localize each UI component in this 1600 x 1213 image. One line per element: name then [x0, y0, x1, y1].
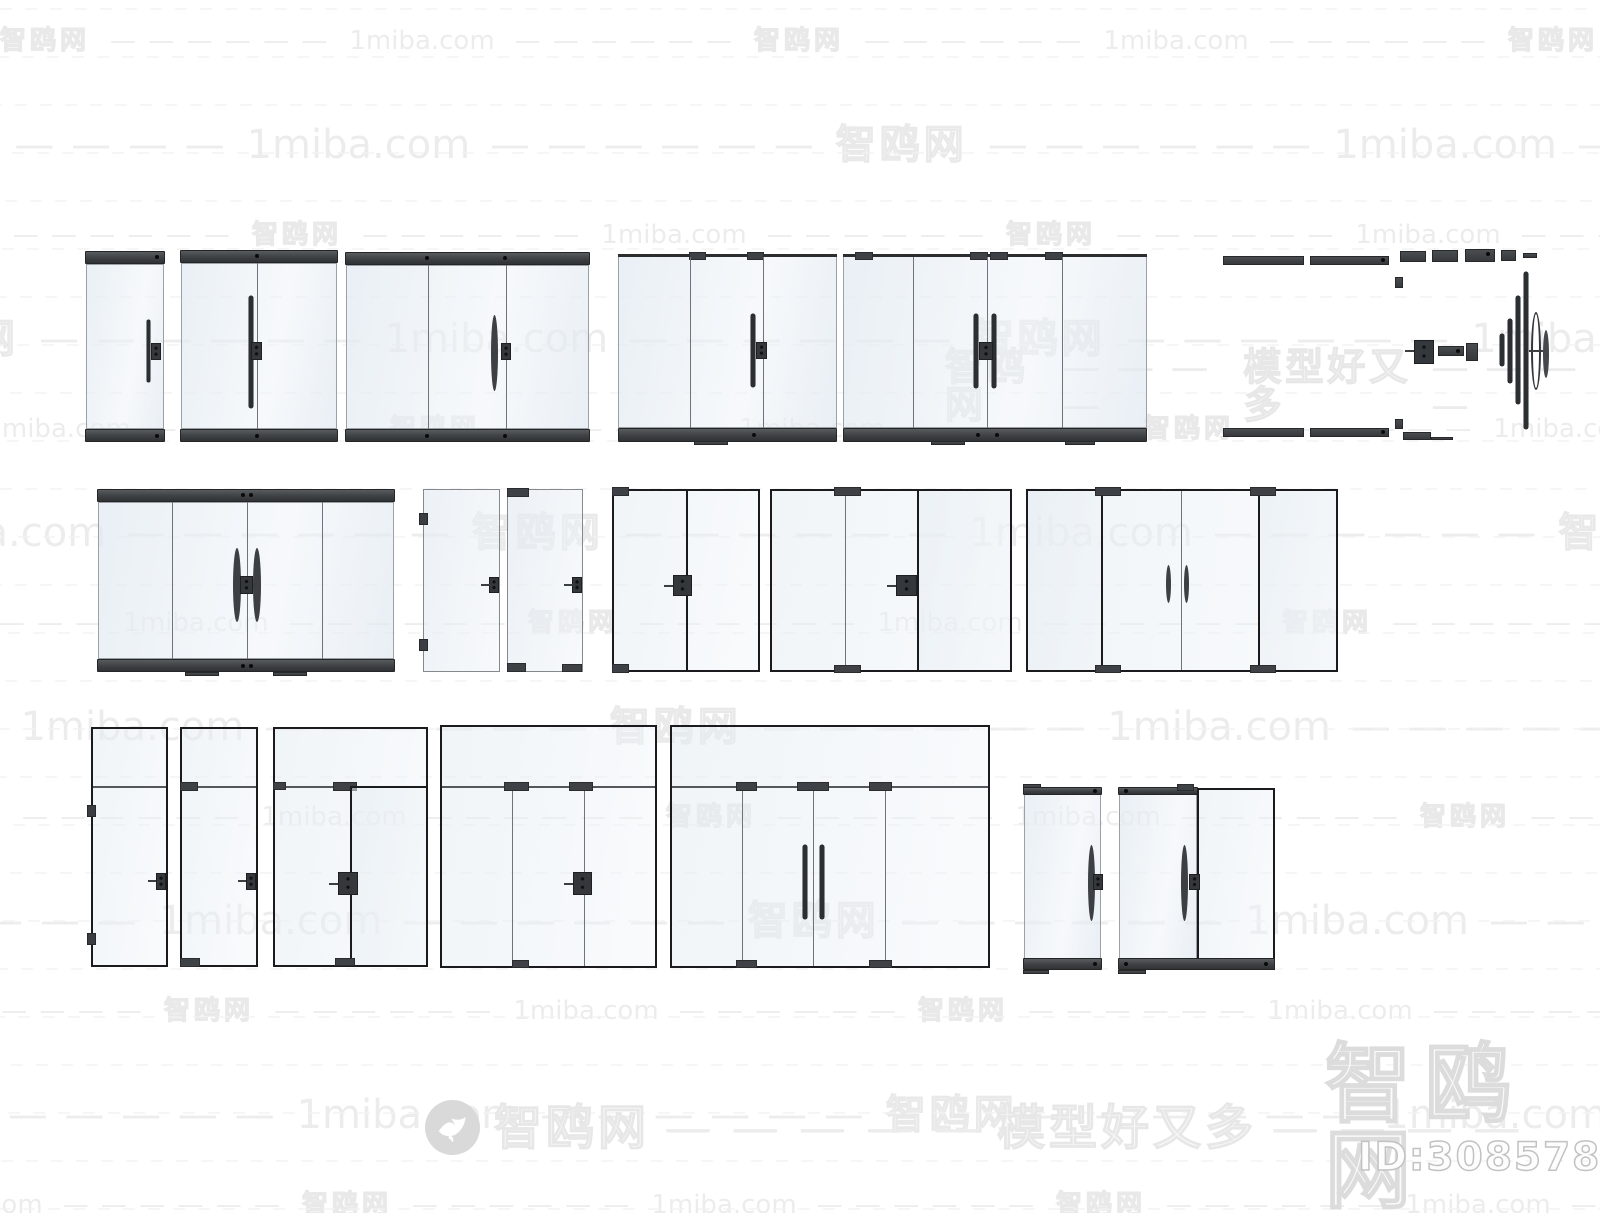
patch-fitting — [512, 960, 529, 968]
hinge — [419, 639, 428, 651]
sliding-door-single — [85, 251, 165, 442]
frame-outline — [91, 727, 168, 967]
frame-outline — [1197, 788, 1275, 970]
door-lock — [501, 343, 511, 360]
patch-fitting — [834, 487, 861, 496]
fastener — [249, 664, 253, 668]
hardware-part — [1310, 256, 1389, 265]
glass-panel — [346, 265, 589, 429]
hardware-part — [1395, 419, 1403, 429]
hardware-part — [1501, 250, 1516, 261]
fastener — [255, 254, 259, 258]
frame-outline — [917, 489, 1012, 672]
fastener — [995, 433, 999, 437]
top-rail — [1023, 787, 1102, 795]
hardware-part — [1438, 346, 1464, 356]
door-lock — [979, 342, 993, 360]
bottom-rail — [618, 428, 837, 442]
door-lock — [156, 873, 166, 890]
fastener — [1093, 789, 1097, 793]
sliding-door-four-panel-wide — [97, 489, 395, 672]
panel-divider — [172, 502, 173, 659]
frame-outline — [440, 725, 657, 968]
patch-fitting — [736, 960, 757, 968]
hardware-part — [1118, 970, 1146, 974]
door-handle — [1184, 565, 1189, 603]
patch-fitting — [990, 252, 1008, 260]
door-handle — [491, 315, 498, 391]
door-lock — [151, 343, 161, 360]
fastener — [241, 493, 245, 497]
lock-key — [329, 883, 338, 885]
patch-fitting — [1250, 665, 1276, 673]
door-lock — [756, 342, 767, 359]
door-handle — [1500, 334, 1504, 366]
transom-line — [442, 786, 655, 788]
door-lock — [572, 577, 582, 593]
bottom-rail — [1023, 958, 1102, 970]
fastener — [1456, 349, 1460, 353]
bottom-rail — [1118, 958, 1275, 970]
hardware-part — [1465, 249, 1495, 262]
patch-fitting — [612, 487, 629, 496]
patch-fitting — [689, 252, 706, 260]
panel-divider — [322, 502, 323, 659]
frame-outline — [670, 725, 990, 968]
lock-key — [481, 584, 490, 586]
transom-door-side-leaf — [273, 727, 428, 967]
fastener — [241, 664, 245, 668]
transom-door-patch — [180, 727, 258, 967]
door-handle — [974, 314, 978, 388]
bottom-rail — [97, 659, 395, 672]
transom-line — [672, 786, 988, 788]
model-preview-canvas: 智鸥网— — — — — —1miba.com— — — — — —智鸥网— —… — [0, 0, 1600, 1213]
door-handle — [803, 845, 807, 919]
door-lock — [246, 873, 256, 890]
fastener — [1381, 258, 1385, 262]
top-rail — [345, 252, 590, 265]
fastener — [155, 255, 159, 259]
door-handle — [820, 845, 824, 919]
patch-fitting — [834, 665, 861, 673]
bottom-rail — [85, 429, 165, 442]
panel-divider — [1062, 257, 1063, 428]
hardware-part — [1310, 428, 1389, 437]
fastener — [255, 434, 259, 438]
hardware-part — [1065, 441, 1095, 445]
hardware-accessories — [1195, 240, 1565, 450]
fastener — [1381, 430, 1385, 434]
door-handle — [1524, 272, 1528, 429]
door-handle — [1181, 845, 1188, 921]
patch-fitting — [562, 664, 582, 672]
fastener — [155, 434, 159, 438]
fastener — [425, 256, 429, 260]
hardware-part — [1431, 437, 1453, 440]
lock-key — [238, 880, 246, 882]
door-lock — [896, 575, 917, 596]
bottom-rail — [345, 429, 590, 442]
patch-fitting — [1177, 784, 1194, 791]
glass-panel — [618, 256, 837, 428]
top-rail — [85, 251, 165, 264]
hardware-part — [273, 672, 307, 676]
hinge — [87, 805, 96, 817]
sliding-door-small — [1023, 787, 1102, 970]
doors-layer — [0, 0, 1600, 1213]
fastener — [249, 493, 253, 497]
panel-divider — [742, 788, 743, 966]
patch-fitting — [273, 782, 286, 790]
panel-divider — [690, 257, 691, 428]
frame-outline — [180, 727, 258, 967]
frame-outline — [1258, 489, 1338, 672]
fastener — [1264, 962, 1268, 966]
patch-fitting — [569, 782, 593, 791]
fastener — [1124, 962, 1128, 966]
hardware-part — [1395, 277, 1403, 288]
door-lock — [1414, 340, 1434, 364]
patch-fitting — [1095, 665, 1121, 673]
patch-fitting — [869, 782, 892, 791]
fastener — [1093, 962, 1097, 966]
door-lock — [489, 577, 499, 593]
frame-outline — [350, 786, 428, 967]
door-lock — [1189, 874, 1200, 890]
lock-key — [887, 585, 896, 587]
door-lock — [338, 872, 358, 895]
fastener — [976, 433, 980, 437]
fastener — [752, 433, 756, 437]
top-rail — [97, 489, 395, 502]
framed-door-double-swing — [1026, 489, 1338, 672]
patch-fitting — [1095, 487, 1121, 496]
patch-fitting — [797, 782, 829, 791]
hardware-part — [1400, 251, 1426, 262]
patch-fitting — [335, 958, 355, 966]
fastener — [503, 256, 507, 260]
patch-fitting — [747, 252, 764, 260]
door-handle — [751, 314, 755, 387]
hardware-part — [931, 441, 965, 445]
patch-fitting — [869, 960, 892, 968]
lock-key — [1405, 350, 1414, 352]
sliding-door-two-panel-small — [1118, 787, 1275, 970]
transom-door-double-leaf — [670, 725, 990, 968]
hinge — [87, 933, 96, 945]
patch-fitting — [504, 782, 529, 791]
panel-divider — [428, 265, 429, 429]
hardware-part — [1023, 970, 1049, 974]
glass-panel-hinged — [423, 489, 500, 672]
patch-fitting — [612, 664, 629, 673]
top-rail — [180, 250, 338, 263]
hardware-part — [1403, 432, 1431, 440]
door-lock — [573, 872, 592, 895]
door-lock — [240, 576, 253, 594]
panel-divider — [885, 788, 886, 966]
glass-panel-patch — [507, 489, 583, 672]
sliding-door-three-panel — [345, 252, 590, 442]
door-handle — [1166, 565, 1171, 603]
door-lock — [673, 575, 692, 596]
patch-fitting — [180, 782, 198, 791]
transom-door-narrow — [91, 727, 168, 967]
lock-key — [1529, 350, 1543, 352]
door-handle — [253, 548, 261, 622]
lock-key — [148, 880, 156, 882]
door-lock — [251, 342, 262, 360]
patch-fitting — [180, 958, 200, 967]
door-handle — [1508, 319, 1512, 383]
door-handle — [1516, 296, 1520, 404]
hardware-part — [1466, 343, 1478, 361]
glass-partition-four-panel — [843, 254, 1147, 442]
framed-door-three-panel — [770, 489, 1012, 672]
door-handle — [147, 320, 150, 382]
hinge — [419, 513, 428, 525]
framed-door-two-panel — [612, 489, 760, 672]
transom-line — [93, 786, 166, 788]
transom-door-center-leaf — [440, 725, 657, 968]
top-frame-line — [618, 254, 837, 257]
patch-fitting — [507, 663, 526, 672]
patch-fitting — [736, 782, 757, 791]
hardware-part — [1223, 256, 1304, 265]
hardware-part — [1223, 428, 1304, 437]
panel-divider — [512, 788, 513, 966]
patch-fitting — [970, 252, 988, 260]
fastener — [425, 434, 429, 438]
frame-outline — [1026, 489, 1103, 672]
patch-fitting — [1250, 487, 1276, 496]
patch-fitting — [1045, 252, 1063, 260]
panel-divider — [1181, 491, 1182, 670]
patch-fitting — [855, 252, 873, 260]
hardware-part — [1432, 250, 1458, 262]
sliding-door-two-panel — [180, 250, 338, 442]
lock-key — [564, 584, 573, 586]
fastener — [1124, 789, 1128, 793]
hardware-part — [1523, 253, 1537, 258]
lock-key — [564, 883, 573, 885]
hardware-part — [694, 441, 728, 445]
patch-fitting — [507, 488, 529, 497]
panel-divider — [845, 491, 846, 670]
lock-key — [664, 585, 673, 587]
fastener — [1486, 252, 1490, 256]
bottom-rail — [180, 429, 338, 442]
panel-divider — [813, 788, 814, 966]
panel-divider — [913, 257, 914, 428]
fastener — [503, 434, 507, 438]
glass-partition-three-panel — [618, 254, 837, 442]
hardware-part — [185, 672, 219, 676]
handle-side-view — [1543, 330, 1549, 378]
door-lock — [1093, 874, 1103, 890]
